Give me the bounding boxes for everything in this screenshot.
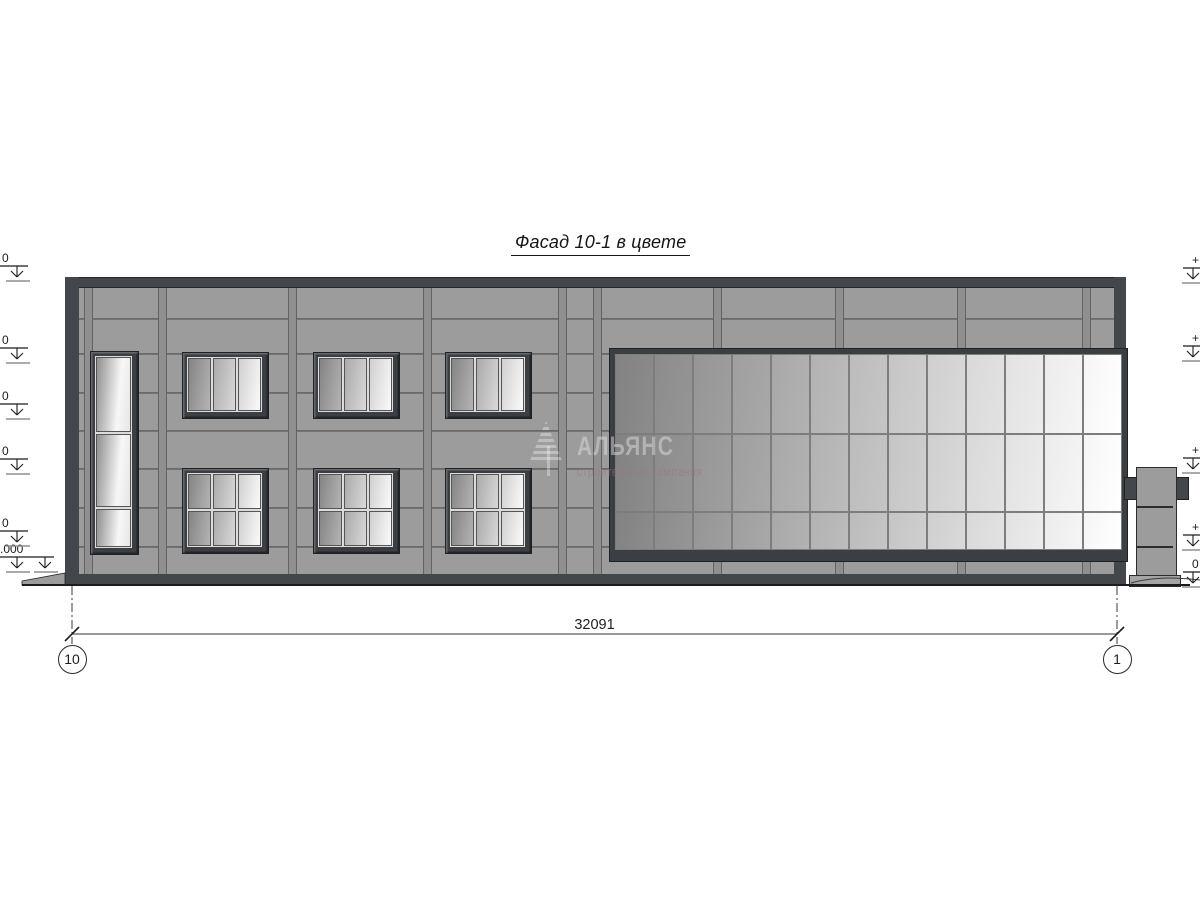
elevation-arrow-wing <box>1187 540 1193 546</box>
elevation-arrow-wing <box>1193 273 1199 279</box>
elevation-arrow-wing <box>1193 463 1199 469</box>
elevation-arrow-wing <box>1193 540 1199 546</box>
elevation-arrow-wing <box>11 271 17 277</box>
elevation-arrow-wing <box>17 409 23 415</box>
elevation-arrow-wing <box>17 536 23 542</box>
elevation-arrow-wing <box>17 271 23 277</box>
elevation-arrow-wing <box>1187 273 1193 279</box>
elevation-arrow-wing <box>17 353 23 359</box>
elevation-arrow-wing <box>17 464 23 470</box>
elevation-arrow-wing <box>17 562 23 568</box>
elevation-arrow-wing <box>11 536 17 542</box>
drawing-canvas: Фасад 10-1 в цвете 32091 10 1 АЛЬЯНС стр… <box>0 0 1200 900</box>
elevation-arrow-wing <box>39 562 45 568</box>
elevation-arrow-wing <box>11 464 17 470</box>
elevation-arrow-wing <box>1193 351 1199 357</box>
sidewalk-ramp <box>22 573 65 585</box>
pillar-plate-curve <box>1131 578 1200 583</box>
elevation-arrow-wing <box>11 409 17 415</box>
elevation-arrow-wing <box>1187 351 1193 357</box>
elevation-arrow-wing <box>1187 463 1193 469</box>
elevation-arrow-wing <box>11 562 17 568</box>
elevation-arrow-wing <box>1187 577 1193 583</box>
annotation-lines-layer <box>0 0 1200 900</box>
elevation-arrow-wing <box>45 562 51 568</box>
elevation-arrow-wing <box>11 353 17 359</box>
